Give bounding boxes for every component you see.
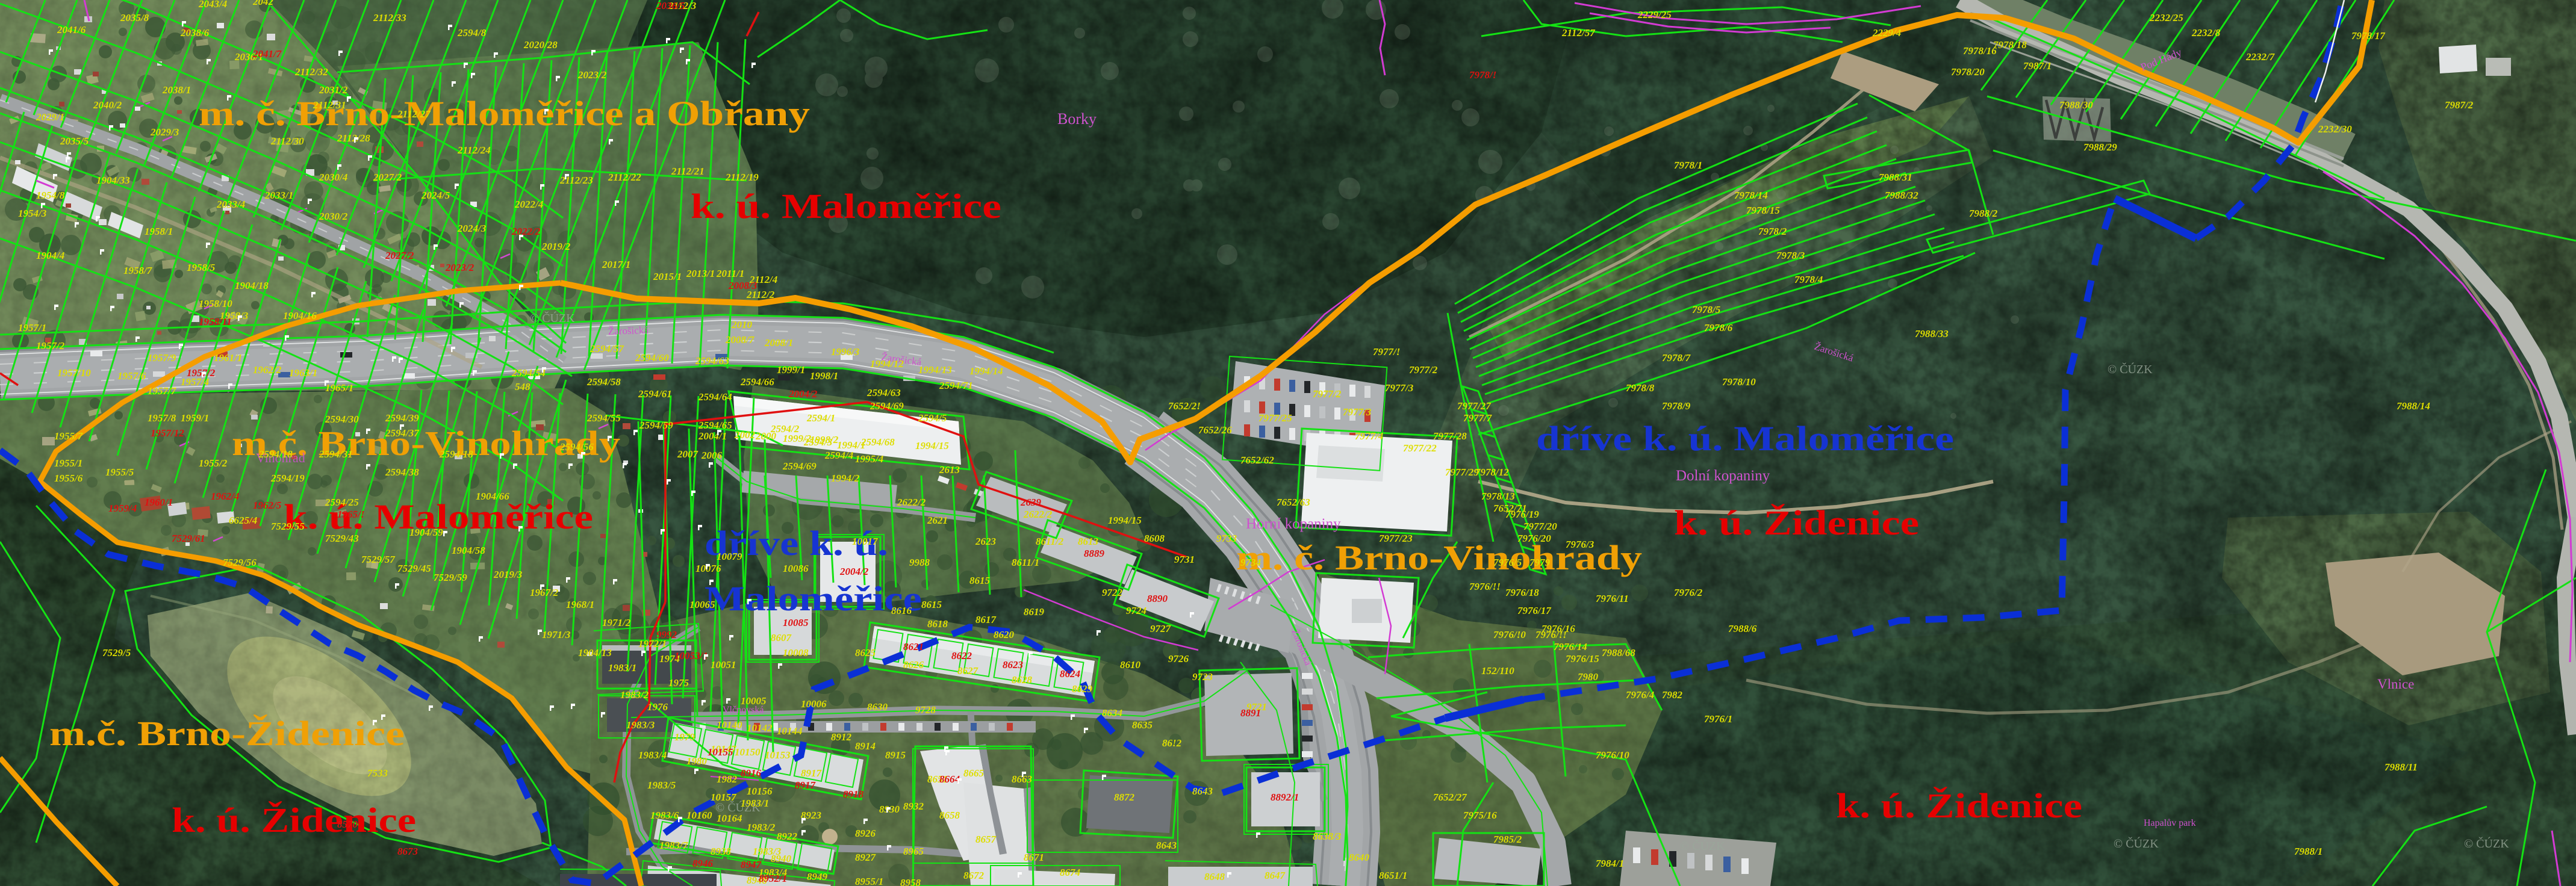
svg-text:7985/2: 7985/2: [1493, 834, 1522, 845]
svg-text:2594/58: 2594/58: [586, 376, 621, 388]
svg-text:2023/2: 2023/2: [445, 262, 474, 273]
svg-text:1904/13: 1904/13: [578, 647, 612, 658]
svg-text:8916: 8916: [741, 767, 762, 779]
svg-text:1955/6: 1955/6: [54, 472, 83, 484]
svg-text:1904/4: 1904/4: [36, 250, 64, 261]
svg-text:1904/66: 1904/66: [476, 491, 509, 502]
svg-text:1954/3: 1954/3: [18, 208, 47, 219]
svg-text:1982: 1982: [717, 773, 738, 785]
svg-text:7988/2: 7988/2: [1969, 208, 1998, 219]
svg-text:7988/68: 7988/68: [1602, 647, 1635, 658]
svg-text:2017/1: 2017/1: [602, 259, 630, 270]
svg-text:8616: 8616: [891, 605, 912, 616]
svg-text:7529/56: 7529/56: [223, 557, 257, 568]
svg-text:7976/2: 7976/2: [1674, 587, 1703, 598]
svg-text:7988/29: 7988/29: [2083, 141, 2117, 153]
svg-text:1975: 1975: [668, 677, 689, 689]
svg-text:1994/15: 1994/15: [915, 440, 949, 451]
svg-text:8648: 8648: [1204, 871, 1225, 882]
svg-text:1957/9: 1957/9: [148, 352, 176, 364]
svg-text:8610: 8610: [1120, 659, 1141, 671]
svg-text:10051: 10051: [711, 659, 736, 671]
svg-text:8672: 8672: [963, 870, 985, 881]
svg-text:8664: 8664: [939, 773, 960, 785]
svg-text:8621: 8621: [903, 641, 924, 652]
svg-text:8912: 8912: [831, 731, 852, 743]
svg-text:2043/4: 2043/4: [198, 0, 227, 10]
svg-text:1904/18: 1904/18: [235, 280, 269, 291]
svg-text:9722: 9722: [1102, 587, 1123, 598]
svg-text:1957/12: 1957/12: [151, 427, 184, 439]
svg-text:1967/2: 1967/2: [530, 587, 559, 598]
svg-text:1994/12: 1994/12: [870, 358, 904, 370]
svg-text:2006: 2006: [701, 450, 723, 461]
svg-text:9992: 9992: [656, 629, 677, 640]
svg-text:2594/39: 2594/39: [385, 412, 419, 424]
svg-text:Vlnice: Vlnice: [2377, 677, 2414, 692]
svg-text:2622/2: 2622/2: [1023, 509, 1053, 520]
svg-text:8634: 8634: [1102, 707, 1122, 719]
svg-text:7976/19: 7976/19: [1505, 509, 1539, 520]
svg-text:9731: 9731: [1174, 554, 1195, 565]
svg-text:Maloměřice: Maloměřice: [705, 579, 922, 618]
svg-text:7978/2: 7978/2: [1758, 226, 1787, 237]
svg-text:2033/1: 2033/1: [264, 190, 293, 201]
svg-text:2015/1: 2015/1: [653, 271, 682, 282]
svg-text:2594/30: 2594/30: [325, 414, 359, 425]
svg-text:8626: 8626: [903, 659, 924, 671]
svg-text:1957/10: 1957/10: [57, 367, 91, 379]
svg-text:1958/10: 1958/10: [199, 298, 232, 309]
svg-text:7978/16: 7978/16: [1963, 45, 1997, 57]
svg-text:1955/2: 1955/2: [199, 457, 228, 469]
svg-text:1962/5: 1962/5: [253, 500, 282, 511]
svg-text:8628: 8628: [1012, 674, 1033, 686]
svg-text:8658: 8658: [939, 810, 960, 821]
svg-text:2594/54: 2594/54: [511, 367, 546, 379]
svg-text:2594/31: 2594/31: [319, 448, 353, 460]
svg-text:1959/1: 1959/1: [181, 412, 209, 424]
svg-text:7978/13: 7978/13: [1481, 491, 1515, 502]
svg-text:2594/64: 2594/64: [698, 391, 732, 403]
svg-text:2027/2: 2027/2: [385, 250, 414, 261]
svg-text:1958/11: 1958/11: [199, 316, 232, 327]
svg-text:7977/7: 7977/7: [1463, 412, 1493, 424]
svg-text:7978/5: 7978/5: [1692, 304, 1721, 315]
svg-text:2623: 2623: [975, 536, 997, 547]
svg-text:8917: 8917: [795, 779, 817, 791]
svg-text:1958/5: 1958/5: [187, 262, 216, 273]
svg-text:9733: 9733: [1216, 533, 1237, 544]
svg-text:2022/4: 2022/4: [514, 199, 543, 210]
svg-text:7529/59: 7529/59: [434, 572, 467, 583]
svg-text:Horní kopaniny: Horní kopaniny: [1246, 516, 1341, 532]
svg-text:1971/3: 1971/3: [542, 629, 571, 640]
svg-text:1995/4: 1995/4: [855, 453, 883, 465]
svg-text:10150: 10150: [735, 746, 761, 758]
svg-text:1980: 1980: [686, 755, 708, 767]
svg-text:2594/19: 2594/19: [270, 472, 305, 484]
svg-text:7978/15: 7978/15: [1746, 205, 1780, 216]
svg-text:© ČÚZK: © ČÚZK: [530, 311, 575, 325]
svg-text:8635: 8635: [1132, 719, 1153, 731]
svg-text:1957/2: 1957/2: [187, 367, 216, 379]
svg-text:2008/3: 2008/3: [728, 280, 758, 291]
svg-text:7988/1: 7988/1: [2294, 846, 2322, 857]
svg-text:8651/1: 8651/1: [1379, 870, 1407, 881]
svg-text:7976/14: 7976/14: [1554, 641, 1587, 652]
svg-text:1955/5: 1955/5: [105, 466, 134, 478]
svg-text:2229/25: 2229/25: [1637, 9, 1672, 20]
svg-text:2112/21: 2112/21: [671, 166, 705, 177]
svg-text:8629: 8629: [1072, 683, 1093, 695]
svg-text:10140: 10140: [717, 719, 742, 731]
svg-text:8630: 8630: [867, 701, 888, 713]
svg-text:1999/2: 1999/2: [783, 433, 812, 444]
svg-text:1971/2: 1971/2: [602, 617, 631, 628]
svg-text:8611/2: 8611/2: [1036, 536, 1064, 547]
svg-text:7982: 7982: [1662, 689, 1683, 701]
svg-text:2594/59: 2594/59: [639, 420, 673, 431]
svg-text:1957/1: 1957/1: [18, 322, 46, 333]
svg-text:8891: 8891: [1240, 707, 1261, 719]
svg-text:7652/2!: 7652/2!: [1168, 400, 1201, 412]
svg-text:2594/56: 2594/56: [559, 441, 594, 453]
svg-text:8938: 8938: [711, 846, 732, 857]
svg-text:9727: 9727: [1150, 623, 1172, 634]
svg-text:7977/29: 7977/29: [1445, 466, 1479, 478]
svg-text:2036/5: 2036/5: [656, 0, 685, 11]
svg-text:10065: 10065: [689, 599, 715, 610]
svg-text:2035/5: 2035/5: [60, 135, 89, 147]
svg-text:9728: 9728: [915, 704, 936, 716]
svg-text:8615: 8615: [921, 599, 942, 610]
svg-text:2030/2: 2030/2: [319, 211, 348, 222]
svg-text:2004/1: 2004/1: [698, 430, 727, 442]
svg-text:2112/24: 2112/24: [457, 144, 491, 156]
svg-text:10153: 10153: [765, 749, 791, 761]
svg-text:7988/33: 7988/33: [1915, 328, 1949, 339]
svg-text:9723: 9723: [1192, 671, 1213, 683]
svg-text:2112/19: 2112/19: [725, 172, 759, 183]
svg-text:Dolní kopaniny: Dolní kopaniny: [1676, 468, 1770, 484]
svg-text:1994/15: 1994/15: [1108, 515, 1142, 526]
svg-text:© ČÚZK: © ČÚZK: [1680, 838, 1725, 853]
svg-text:7976/15: 7976/15: [1566, 653, 1599, 664]
svg-text:8640: 8640: [1349, 852, 1370, 863]
svg-text:8872: 8872: [1114, 792, 1135, 803]
svg-text:10144: 10144: [777, 725, 803, 737]
svg-text:10155: 10155: [708, 746, 733, 758]
svg-text:7533: 7533: [367, 767, 388, 779]
svg-text:2030/4: 2030/4: [319, 172, 347, 183]
svg-text:2024/3: 2024/3: [457, 223, 487, 234]
svg-text:8958: 8958: [900, 877, 921, 886]
svg-text:7977/!: 7977/!: [1373, 346, 1400, 358]
svg-text:7978/!: 7978/!: [1469, 69, 1496, 81]
svg-text:1965/1: 1965/1: [325, 382, 353, 394]
svg-text:7529/61: 7529/61: [172, 533, 205, 544]
svg-text:1957/2: 1957/2: [36, 340, 65, 352]
svg-text:7978/6: 7978/6: [1704, 322, 1733, 333]
svg-text:1958/1: 1958/1: [145, 226, 173, 237]
svg-text:7987/1: 7987/1: [2023, 60, 2052, 72]
svg-text:7977/20: 7977/20: [1523, 521, 1557, 532]
svg-text:8892/1: 8892/1: [1271, 792, 1299, 803]
svg-text:2041/6: 2041/6: [57, 24, 86, 36]
svg-text:8623: 8623: [1003, 659, 1024, 671]
svg-text:2019/3: 2019/3: [493, 569, 523, 580]
svg-text:7978/10: 7978/10: [1722, 376, 1756, 388]
svg-text:2008/7: 2008/7: [725, 334, 755, 345]
svg-text:2594/1: 2594/1: [806, 412, 835, 424]
svg-text:2035/8: 2035/8: [120, 12, 149, 23]
svg-text:7976/11: 7976/11: [1596, 593, 1629, 604]
svg-text:10085: 10085: [783, 617, 809, 628]
svg-text:2594/25: 2594/25: [325, 497, 359, 508]
svg-text:2594/68: 2594/68: [860, 436, 895, 448]
svg-text:2027/2: 2027/2: [373, 172, 402, 183]
svg-text:7976/1: 7976/1: [1704, 713, 1732, 725]
svg-text:2594/37: 2594/37: [385, 427, 420, 439]
svg-text:1959/4: 1959/4: [108, 503, 137, 514]
svg-text:8643: 8643: [1156, 840, 1177, 851]
svg-text:7977/4: 7977/4: [1355, 430, 1383, 442]
svg-text:2594/66: 2594/66: [740, 376, 774, 388]
svg-text:1961/1: 1961/1: [214, 352, 242, 364]
svg-text:2594/65: 2594/65: [698, 420, 732, 431]
svg-text:2112/27: 2112/27: [397, 108, 431, 120]
svg-text:7978/20: 7978/20: [1951, 66, 1985, 78]
svg-text:7988/31: 7988/31: [1879, 172, 1912, 183]
svg-text:8952/1: 8952/1: [759, 873, 787, 884]
svg-text:10086: 10086: [783, 563, 809, 574]
svg-text:2594/63: 2594/63: [695, 355, 729, 367]
svg-text:9726: 9726: [1168, 653, 1189, 664]
svg-text:Borky: Borky: [1057, 110, 1097, 128]
svg-text:8922: 8922: [777, 831, 798, 842]
svg-text:2594/38: 2594/38: [385, 466, 419, 478]
svg-text:7976/!0: 7976/!0: [1493, 629, 1526, 640]
svg-text:7987/2: 7987/2: [2445, 99, 2474, 111]
svg-text:1962/2: 1962/2: [253, 364, 282, 376]
svg-text:8570: 8570: [337, 819, 358, 830]
svg-text:k. ú. Maloměřice: k. ú. Maloměřice: [691, 187, 1001, 226]
svg-text:7988/6: 7988/6: [1728, 623, 1757, 634]
svg-text:2112/31: 2112/31: [313, 99, 346, 111]
svg-text:k. ú. Židenice: k. ú. Židenice: [1674, 503, 1919, 542]
svg-text:2594/71: 2594/71: [939, 380, 973, 391]
svg-text:1983/4: 1983/4: [638, 749, 667, 761]
svg-text:8607: 8607: [771, 632, 792, 643]
svg-text:7977/2: 7977/2: [1313, 388, 1342, 400]
svg-text:2232/7: 2232/7: [2245, 51, 2276, 63]
svg-text:1965/!: 1965/!: [337, 509, 364, 520]
svg-text:2000: 2000: [755, 430, 777, 442]
svg-text:8608: 8608: [1144, 533, 1165, 544]
svg-text:7976/18: 7976/18: [1505, 587, 1539, 598]
svg-text:8643: 8643: [1192, 785, 1213, 797]
svg-text:7529/45: 7529/45: [397, 563, 431, 574]
svg-text:k. ú. Židenice: k. ú. Židenice: [172, 801, 416, 840]
svg-text:7976/20: 7976/20: [1517, 533, 1551, 544]
svg-text:7977/3: 7977/3: [1343, 406, 1372, 418]
svg-text:7529/57: 7529/57: [361, 554, 396, 565]
svg-text:2229/4: 2229/4: [1872, 27, 1901, 39]
svg-text:1957/7: 1957/7: [148, 385, 177, 397]
svg-text:2622/2: 2622/2: [897, 497, 926, 508]
svg-text:7988/14: 7988/14: [2397, 400, 2430, 412]
svg-text:10017: 10017: [852, 536, 879, 547]
svg-text:8671: 8671: [1024, 852, 1044, 863]
svg-text:2639: 2639: [1020, 497, 1042, 508]
svg-text:7978/9: 7978/9: [1662, 400, 1691, 412]
svg-text:8949: 8949: [807, 871, 828, 882]
svg-text:2040/2: 2040/2: [93, 99, 122, 111]
svg-text:2020/28: 2020/28: [523, 39, 558, 51]
svg-text:7988/32: 7988/32: [1885, 190, 1918, 201]
svg-text:10008: 10008: [783, 647, 809, 658]
svg-text:10142: 10142: [747, 722, 773, 734]
svg-text:6625/4: 6625/4: [229, 515, 257, 526]
svg-text:1983/2: 1983/2: [620, 689, 649, 701]
svg-text:152/110: 152/110: [1481, 665, 1514, 677]
svg-text:2594/61: 2594/61: [638, 388, 672, 400]
svg-text:10053/1: 10053/1: [674, 650, 708, 661]
svg-text:Hapalův park: Hapalův park: [2144, 818, 2196, 828]
svg-text:7529/55: 7529/55: [271, 521, 305, 532]
svg-text:2594/4: 2594/4: [824, 450, 853, 461]
svg-text:7652/27: 7652/27: [1433, 792, 1467, 803]
svg-text:7978/1: 7978/1: [1674, 160, 1702, 171]
svg-text:548: 548: [515, 381, 530, 392]
svg-text:2112/30: 2112/30: [270, 135, 304, 147]
svg-text:10156: 10156: [747, 785, 773, 797]
svg-text:8647: 8647: [1265, 870, 1286, 881]
svg-text:2594/18: 2594/18: [258, 448, 293, 460]
svg-text:2613: 2613: [939, 464, 960, 476]
svg-text:7977/2: 7977/2: [1409, 364, 1438, 376]
svg-text:2007: 2007: [677, 448, 699, 460]
svg-text:1963/1: 1963/1: [289, 367, 317, 379]
svg-text:2594/60: 2594/60: [635, 352, 669, 364]
svg-text:8618: 8618: [927, 618, 948, 630]
svg-text:2112/33: 2112/33: [373, 12, 406, 23]
svg-text:7977/27: 7977/27: [1457, 400, 1492, 412]
svg-text:8947: 8947: [741, 859, 762, 870]
svg-text:7988/30: 7988/30: [2059, 99, 2093, 111]
svg-text:10157: 10157: [711, 792, 737, 803]
svg-text:7977/25: 7977/25: [1258, 412, 1292, 424]
svg-text:8890: 8890: [1147, 593, 1168, 604]
svg-text:7976/4: 7976/4: [1626, 689, 1654, 701]
svg-text:1960/1: 1960/1: [145, 497, 173, 508]
svg-text:2112/22: 2112/22: [608, 172, 641, 183]
svg-text:1976: 1976: [647, 701, 668, 713]
svg-text:2112/28: 2112/28: [337, 132, 370, 144]
svg-text:8624: 8624: [1060, 668, 1080, 680]
svg-text:8625: 8625: [855, 647, 876, 658]
svg-text:2023/2: 2023/2: [577, 69, 607, 81]
svg-text:2112/57: 2112/57: [1561, 27, 1596, 39]
svg-text:7977/28: 7977/28: [1433, 430, 1467, 442]
svg-text:2033/4: 2033/4: [216, 199, 245, 210]
svg-text:2029/3: 2029/3: [150, 126, 179, 138]
svg-text:1904/58: 1904/58: [452, 545, 485, 556]
svg-text:2232/30: 2232/30: [2318, 123, 2352, 135]
svg-text:7976/17: 7976/17: [1517, 605, 1552, 616]
svg-text:7977/3: 7977/3: [1385, 382, 1414, 394]
svg-text:7978/7: 7978/7: [1662, 352, 1691, 364]
svg-text:8627: 8627: [957, 665, 979, 677]
svg-text:2010: 2010: [731, 319, 753, 330]
svg-text:8915: 8915: [885, 749, 906, 761]
svg-text:1955/7: 1955/7: [54, 430, 84, 442]
svg-text:8926: 8926: [855, 828, 876, 839]
svg-text:2019/2: 2019/2: [541, 241, 571, 252]
svg-text:9734: 9734: [1240, 557, 1261, 568]
svg-text:1957/8: 1957/8: [148, 412, 176, 424]
svg-text:7978/12: 7978/12: [1475, 466, 1509, 478]
svg-text:2013/1: 2013/1: [686, 268, 715, 279]
svg-text:1954/8: 1954/8: [36, 190, 65, 201]
svg-text:2038/1: 2038/1: [162, 84, 191, 96]
svg-text:2594/69: 2594/69: [782, 460, 817, 472]
svg-text:2594/69: 2594/69: [870, 400, 904, 412]
svg-text:7988/11: 7988/11: [2385, 761, 2418, 773]
svg-text:7529/43: 7529/43: [325, 533, 359, 544]
svg-text:1994/1: 1994/1: [837, 439, 865, 451]
svg-text:1996/3: 1996/3: [831, 346, 860, 358]
svg-text:7652/62: 7652/62: [1240, 454, 1274, 466]
svg-text:8673: 8673: [397, 846, 418, 857]
svg-text:2011/1: 2011/1: [716, 268, 744, 279]
svg-text:2038/6: 2038/6: [180, 27, 210, 39]
svg-text:2022/2: 2022/2: [511, 226, 541, 237]
svg-text:7978/8: 7978/8: [1626, 382, 1655, 394]
svg-text:1983/2: 1983/2: [747, 822, 776, 833]
svg-text:7975/16: 7975/16: [1463, 810, 1497, 821]
svg-text:2002: 2002: [734, 429, 756, 441]
svg-text:7529/5: 7529/5: [102, 647, 131, 658]
svg-text:1983/3: 1983/3: [626, 719, 655, 731]
svg-text:8620: 8620: [994, 629, 1015, 640]
svg-text:8932: 8932: [903, 801, 924, 812]
svg-text:2594/18: 2594/18: [439, 448, 473, 460]
svg-text:2232/25: 2232/25: [2149, 12, 2183, 23]
svg-text:7978/14: 7978/14: [1734, 190, 1768, 201]
svg-text:2024/5: 2024/5: [421, 190, 450, 201]
svg-text:2031/2: 2031/2: [319, 84, 348, 96]
svg-text:1998/2: 1998/2: [810, 434, 839, 445]
svg-text:1983/1: 1983/1: [608, 662, 636, 674]
svg-text:9988: 9988: [909, 557, 930, 568]
svg-text:8619: 8619: [1024, 606, 1045, 618]
svg-text:10006: 10006: [801, 698, 827, 710]
svg-text:1958/7: 1958/7: [123, 265, 153, 276]
svg-text:2594/57: 2594/57: [590, 343, 624, 355]
svg-text:8946: 8946: [692, 858, 714, 869]
svg-text:1957/6: 1957/6: [117, 370, 146, 382]
svg-text:2594/5: 2594/5: [918, 412, 947, 424]
svg-text:2594/63: 2594/63: [866, 387, 901, 398]
svg-text:10005: 10005: [741, 695, 767, 707]
svg-text:2042: 2042: [252, 0, 274, 7]
svg-text:7979: 7979: [1529, 557, 1551, 568]
svg-text:7978/17: 7978/17: [2351, 30, 2386, 42]
svg-text:1962/4: 1962/4: [211, 491, 239, 502]
svg-text:1968/1: 1968/1: [566, 599, 594, 610]
